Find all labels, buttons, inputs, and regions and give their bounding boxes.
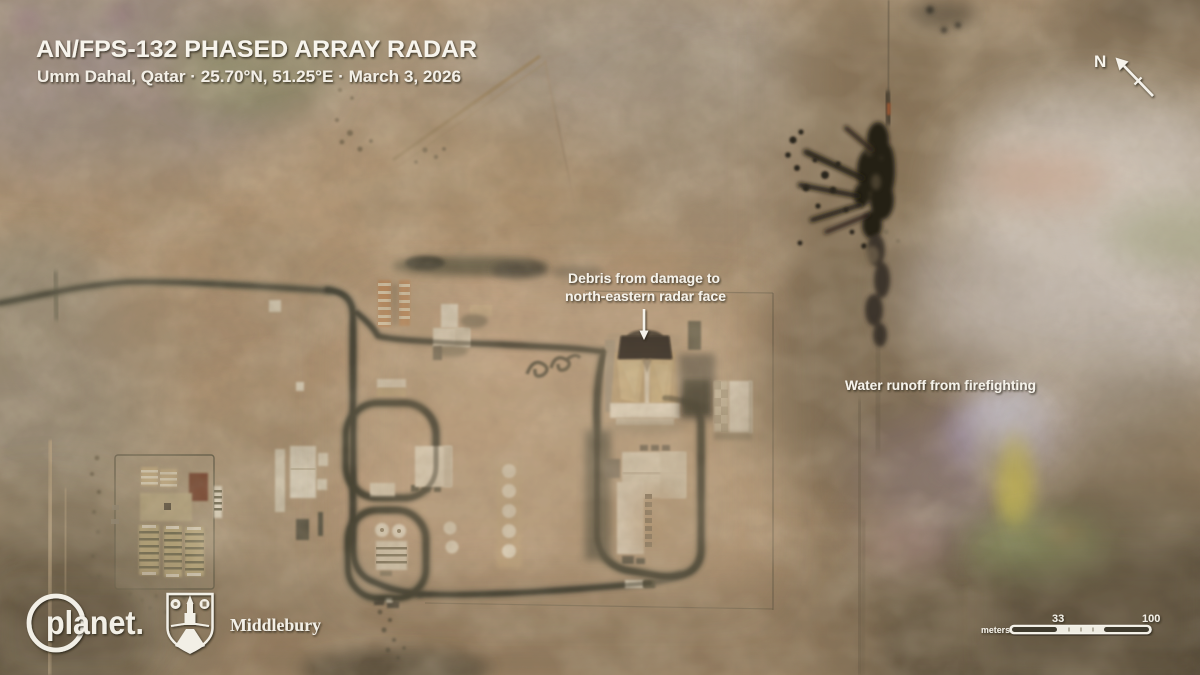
svg-text:planet.: planet.	[46, 604, 144, 641]
svg-text:Umm Dahal, Qatar · 25.70°N, 51: Umm Dahal, Qatar · 25.70°N, 51.25°E · Ma…	[37, 67, 461, 86]
svg-text:33: 33	[1052, 613, 1064, 625]
svg-text:100: 100	[1142, 613, 1160, 625]
svg-text:N: N	[1094, 52, 1106, 71]
svg-text:meters: meters	[981, 625, 1010, 635]
svg-text:Debris from damage to: Debris from damage to	[568, 270, 720, 286]
svg-text:north-eastern radar face: north-eastern radar face	[565, 288, 726, 304]
svg-text:AN/FPS-132 PHASED ARRAY RADAR: AN/FPS-132 PHASED ARRAY RADAR	[36, 36, 477, 63]
svg-text:Water runoff from firefighting: Water runoff from firefighting	[845, 377, 1036, 393]
svg-text:Middlebury: Middlebury	[230, 615, 321, 635]
